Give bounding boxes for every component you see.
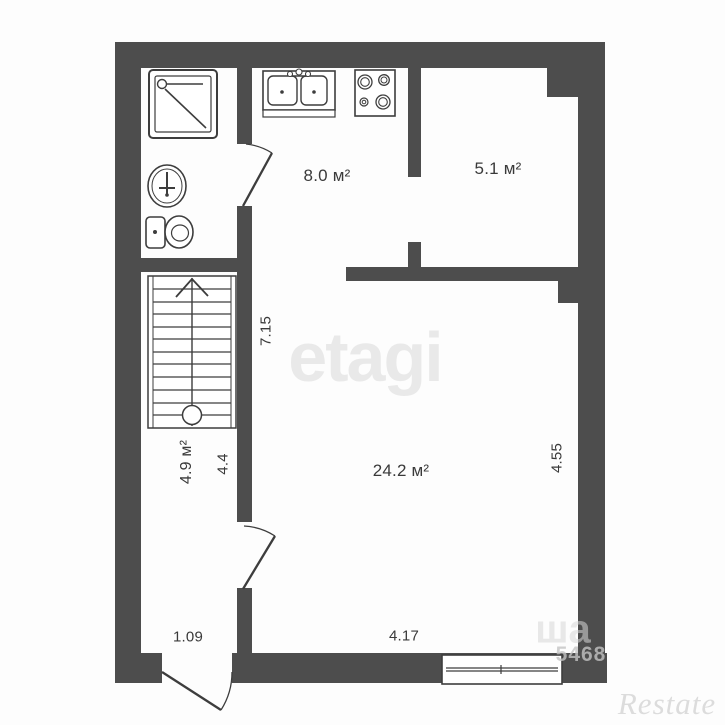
dimension-hall-bottom-width: 1.09 xyxy=(173,629,203,646)
dimension-living-right-height: 4.55 xyxy=(549,443,566,473)
watermark-phone-fragment: 5468 xyxy=(556,643,607,667)
room-label-hall: 4.9 м² xyxy=(178,440,196,484)
room-label-small-room: 5.1 м² xyxy=(475,159,522,179)
floor-plan: etagi xyxy=(0,0,725,725)
dimension-living-bottom-width: 4.17 xyxy=(389,628,419,645)
labels-layer: 8.0 м² 5.1 м² 24.2 м² 4.9 м² 7.15 4.4 4.… xyxy=(0,0,725,725)
room-label-living-room: 24.2 м² xyxy=(373,461,430,481)
watermark-restate: Restate xyxy=(618,686,716,722)
dimension-hall-width: 4.4 xyxy=(215,453,232,474)
dimension-left-height: 7.15 xyxy=(258,316,275,346)
room-label-kitchen: 8.0 м² xyxy=(304,166,351,186)
